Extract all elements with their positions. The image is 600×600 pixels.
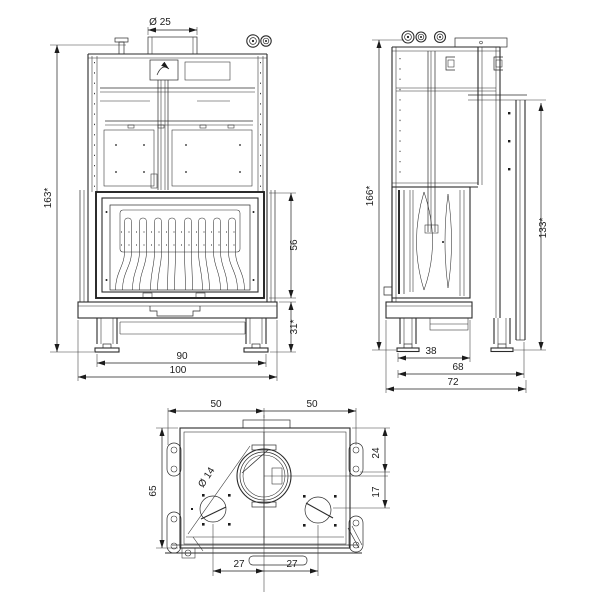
dim-front-glass-height: 56 <box>289 239 300 251</box>
front-pulleys <box>247 35 271 47</box>
technical-drawing-canvas: Ø 25 163* 56 31* 90 100 <box>0 0 600 600</box>
dim-front-overall-height: 163* <box>43 188 54 209</box>
dim-top-half-width-left: 50 <box>210 399 222 410</box>
top-dimensions: 50 50 65 24 17 27 27 <box>148 399 390 576</box>
side-firebox-profile <box>384 187 470 298</box>
top-front-frame <box>165 526 362 565</box>
dim-side-overall-height: 166* <box>365 186 376 207</box>
front-flue-collar <box>115 37 197 54</box>
side-view: 166* 133* 38 68 72 <box>365 31 549 393</box>
dim-top-pipe-diameter: Ø 14 <box>196 465 217 490</box>
top-view: Ø 14 50 50 65 <box>148 399 390 592</box>
fireplace-three-view-drawing: Ø 25 163* 56 31* 90 100 <box>0 0 600 600</box>
dim-front-flue-diameter: Ø 25 <box>149 17 171 28</box>
dim-top-pipe-spacing-right: 27 <box>286 559 298 570</box>
dim-side-overall-depth: 72 <box>447 377 459 388</box>
top-pipe-holes: Ø 14 <box>188 446 337 534</box>
top-side-rails <box>167 443 363 553</box>
dim-side-rear-height: 133* <box>538 218 549 239</box>
side-upper-interior <box>392 51 503 233</box>
dim-top-flue-offset-front: 17 <box>371 486 382 498</box>
side-pulleys <box>402 31 446 43</box>
front-body-shell <box>80 54 275 302</box>
dim-side-firebox-depth: 38 <box>425 346 437 357</box>
dim-top-flue-offset-back: 24 <box>371 447 382 459</box>
front-view: Ø 25 163* 56 31* 90 100 <box>43 17 300 381</box>
side-plinth-and-legs <box>386 302 513 352</box>
dim-side-body-depth: 68 <box>452 362 464 373</box>
side-rear-shield <box>468 95 527 340</box>
front-plinth-and-legs <box>78 302 277 352</box>
dim-top-overall-depth: 65 <box>148 485 159 497</box>
top-body <box>180 415 388 592</box>
front-upper-interior <box>100 60 255 190</box>
dim-top-half-width-right: 50 <box>306 399 318 410</box>
front-dimensions: Ø 25 163* 56 31* 90 100 <box>43 17 300 381</box>
dim-front-overall-width: 100 <box>170 365 187 376</box>
dim-top-pipe-spacing-left: 27 <box>233 559 245 570</box>
dim-front-body-width: 90 <box>176 351 188 362</box>
dim-front-plinth-height: 31* <box>289 319 300 334</box>
front-flame-tubes <box>116 210 245 290</box>
